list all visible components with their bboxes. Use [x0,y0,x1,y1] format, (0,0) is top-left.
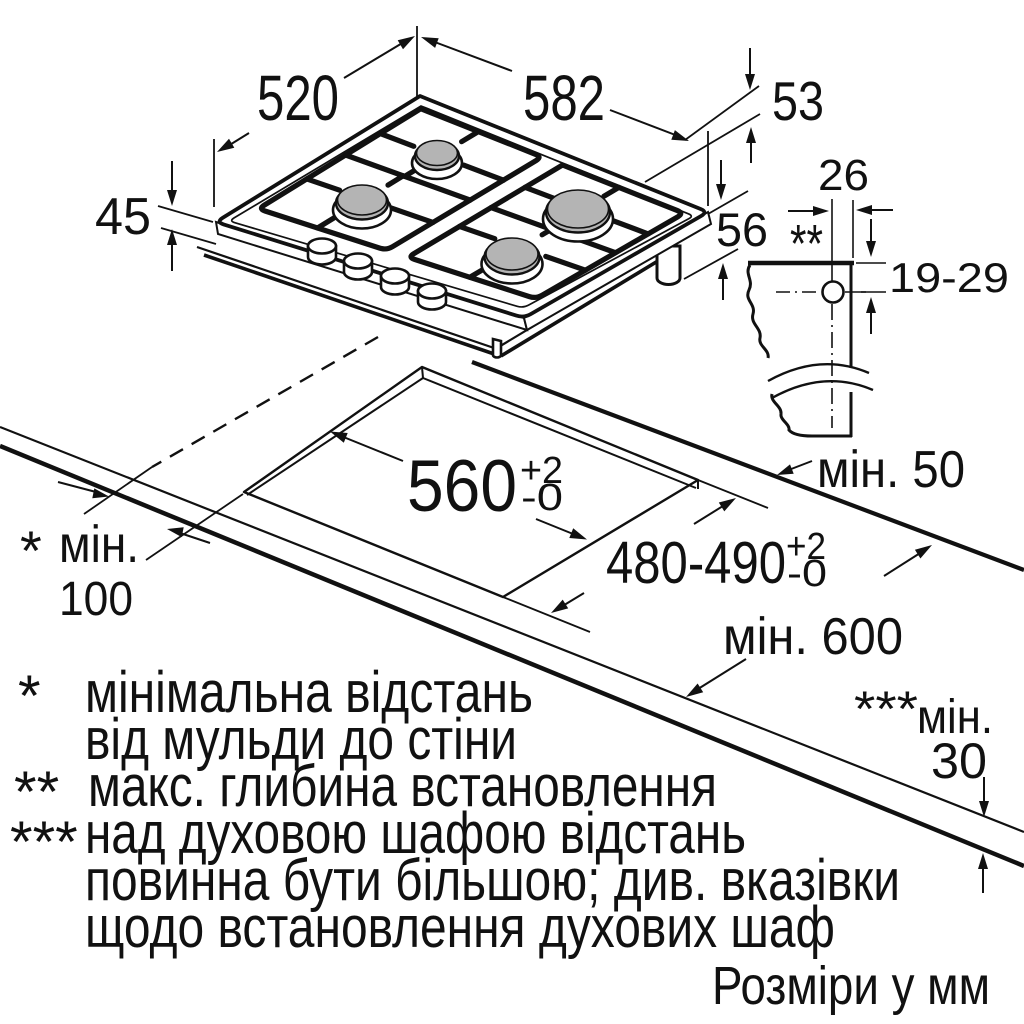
svg-text:100: 100 [59,573,133,626]
svg-text:-0: -0 [787,553,827,595]
svg-text:26: 26 [818,151,869,200]
svg-text:-0: -0 [521,477,563,519]
svg-text:480-490: 480-490 [606,530,786,596]
svg-text:***: *** [10,810,78,875]
svg-text:мін. 600: мін. 600 [723,608,903,666]
svg-text:мін. 50: мін. 50 [817,441,965,499]
svg-text:19-29: 19-29 [889,254,1009,301]
svg-text:Розміри у мм: Розміри у мм [712,956,990,1016]
svg-text:56: 56 [716,203,768,256]
svg-text:щодо встановлення духових шаф: щодо встановлення духових шаф [85,895,835,960]
svg-text:30: 30 [931,733,987,789]
svg-text:***: *** [854,681,918,737]
svg-text:**: ** [790,214,823,274]
svg-text:*: * [18,664,41,729]
svg-text:мін.: мін. [59,516,139,574]
svg-text:560: 560 [407,446,517,527]
svg-text:53: 53 [772,70,824,132]
svg-text:582: 582 [523,62,605,134]
svg-text:*: * [20,519,42,582]
svg-text:520: 520 [257,62,339,134]
svg-text:45: 45 [95,188,151,246]
